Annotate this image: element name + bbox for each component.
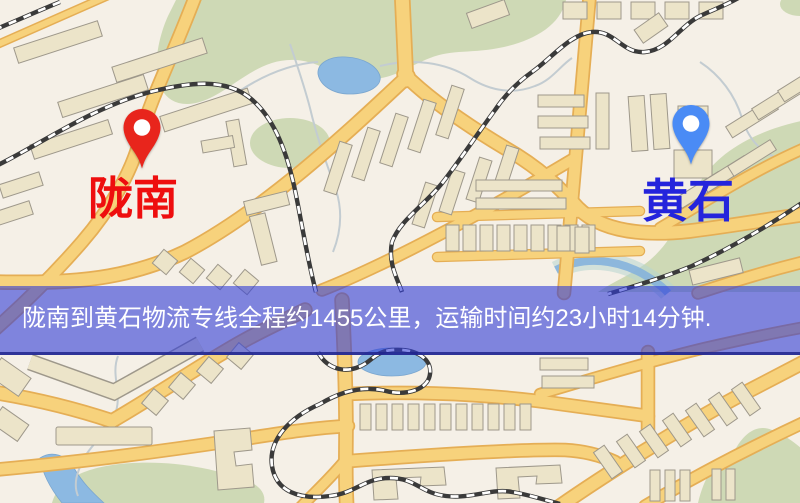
origin-pin-icon[interactable] (120, 107, 164, 171)
route-info-text: 陇南到黄石物流专线全程约1455公里，运输时间约23小时14分钟. (0, 286, 800, 352)
route-info-banner: 陇南到黄石物流专线全程约1455公里，运输时间约23小时14分钟. (0, 286, 800, 355)
destination-label: 黄石 (642, 178, 734, 224)
origin-pin-hole (134, 119, 151, 136)
map-graphic (0, 0, 800, 503)
origin-label: 陇南 (88, 176, 178, 221)
destination-pin-shape (673, 105, 710, 165)
origin-pin-shape (124, 109, 161, 169)
destination-pin-icon[interactable] (669, 103, 713, 167)
destination-pin-hole (683, 115, 700, 132)
map: 陇南 黄石 陇南到黄石物流专线全程约1455公里，运输时间约23小时14分钟. (0, 0, 800, 503)
